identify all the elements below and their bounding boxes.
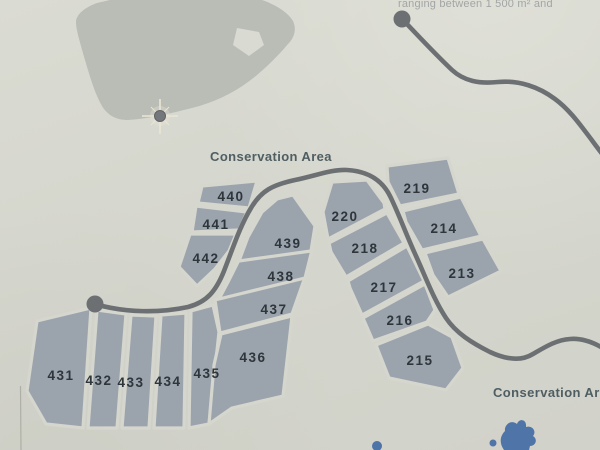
lot-number-213: 213 [448,266,475,281]
cul-de-sac-circle [87,296,104,313]
lot-number-218: 218 [351,241,378,256]
lot-number-215: 215 [406,353,433,368]
site-plan-map: ranging between 1 500 m² and Conservatio… [0,0,600,450]
lot-size-note: ranging between 1 500 m² and [398,0,553,10]
lot-number-436: 436 [239,350,266,365]
water-pond [490,440,497,447]
lot-number-431: 431 [47,368,74,383]
water-dot [372,441,382,450]
lot-number-439: 439 [274,236,301,251]
lot-433 [122,315,156,428]
lot-number-220: 220 [331,209,358,224]
south-africa-silhouette [76,0,295,120]
upper-road [402,19,600,155]
conservation-area-label-top: Conservation Area [210,149,332,164]
paper-crease [21,386,22,450]
lot-number-437: 437 [260,302,287,317]
lot-number-217: 217 [370,280,397,295]
lot-number-440: 440 [217,189,244,204]
lot-number-435: 435 [193,366,220,381]
cul-de-sac-circle [394,11,411,28]
lot-number-442: 442 [192,251,219,266]
lot-number-216: 216 [386,313,413,328]
lot-number-219: 219 [403,181,430,196]
lot-number-214: 214 [430,221,457,236]
lot-432 [88,310,126,428]
lot-434 [154,313,186,428]
lot-number-441: 441 [202,217,229,232]
lot-number-432: 432 [85,373,112,388]
site-plan-photo: ranging between 1 500 m² and Conservatio… [0,0,600,450]
lot-number-433: 433 [117,375,144,390]
lot-number-434: 434 [154,374,181,389]
water-body [501,420,536,450]
conservation-area-label-bottom: Conservation Area [493,385,600,400]
lot-number-438: 438 [267,269,294,284]
